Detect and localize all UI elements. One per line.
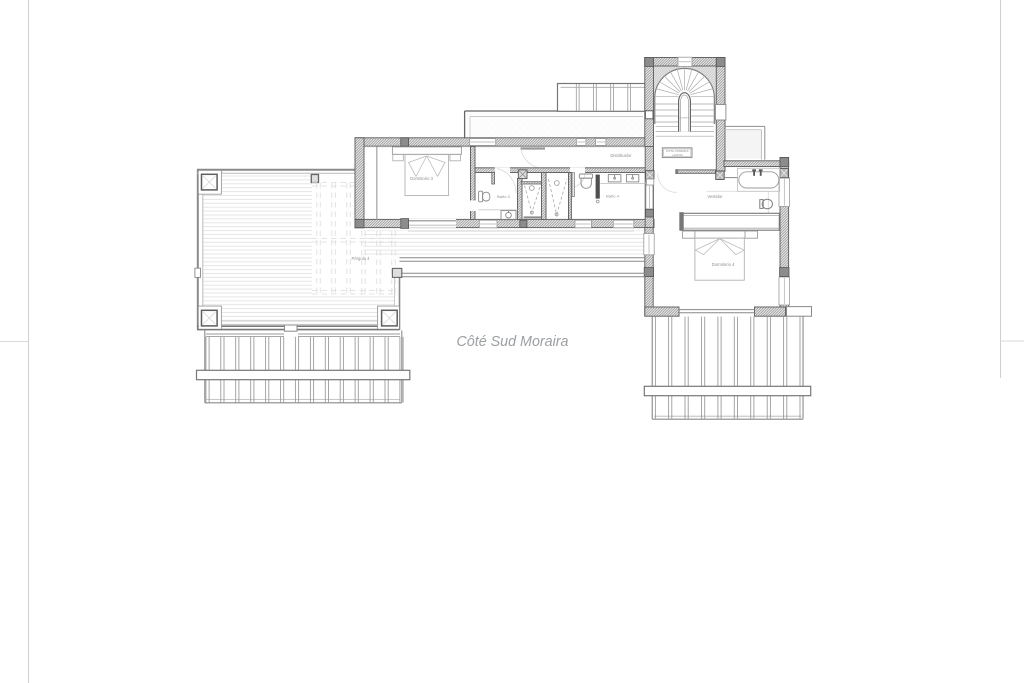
svg-text:Côté Sud Moraira: Côté Sud Moraira (456, 334, 568, 350)
svg-text:escalera: escalera (680, 115, 690, 119)
svg-text:Dormitorio 3: Dormitorio 3 (410, 176, 433, 181)
svg-text:Baño 3: Baño 3 (497, 194, 510, 199)
svg-text:Vestidor: Vestidor (707, 194, 723, 199)
svg-text:+140.50: +140.50 (672, 153, 683, 157)
svg-text:Baño 4: Baño 4 (606, 194, 619, 199)
svg-text:Distribuidor: Distribuidor (610, 153, 632, 158)
svg-text:Pérgola 4: Pérgola 4 (352, 256, 371, 261)
svg-text:Dormitorio 4: Dormitorio 4 (712, 262, 735, 267)
